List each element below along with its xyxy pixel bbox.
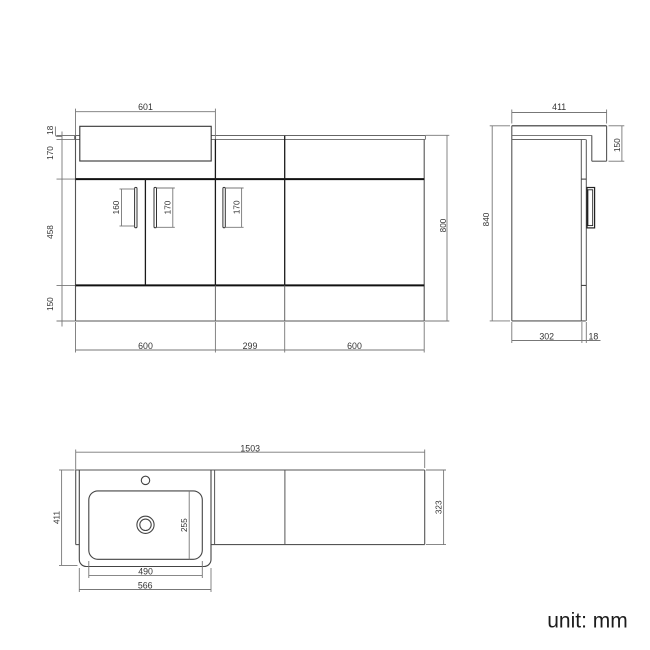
svg-text:302: 302	[539, 332, 554, 342]
svg-text:600: 600	[138, 341, 153, 351]
svg-text:840: 840	[482, 212, 491, 226]
svg-text:299: 299	[243, 341, 258, 351]
svg-text:170: 170	[232, 200, 241, 214]
svg-text:490: 490	[138, 566, 153, 576]
svg-text:800: 800	[439, 218, 448, 232]
svg-text:18: 18	[46, 125, 55, 135]
svg-text:160: 160	[112, 200, 121, 214]
svg-text:unit: mm: unit: mm	[547, 610, 628, 633]
svg-text:566: 566	[138, 581, 153, 591]
svg-text:601: 601	[138, 102, 153, 112]
svg-text:411: 411	[552, 102, 566, 112]
svg-text:170: 170	[164, 200, 173, 214]
svg-text:411: 411	[52, 511, 61, 524]
svg-text:170: 170	[46, 146, 55, 160]
svg-text:600: 600	[347, 341, 362, 351]
svg-text:323: 323	[434, 500, 443, 514]
svg-text:458: 458	[46, 225, 55, 239]
svg-text:18: 18	[589, 332, 599, 342]
svg-text:255: 255	[180, 518, 189, 532]
svg-text:150: 150	[46, 297, 55, 311]
svg-text:150: 150	[613, 138, 622, 152]
svg-text:1503: 1503	[240, 443, 260, 453]
